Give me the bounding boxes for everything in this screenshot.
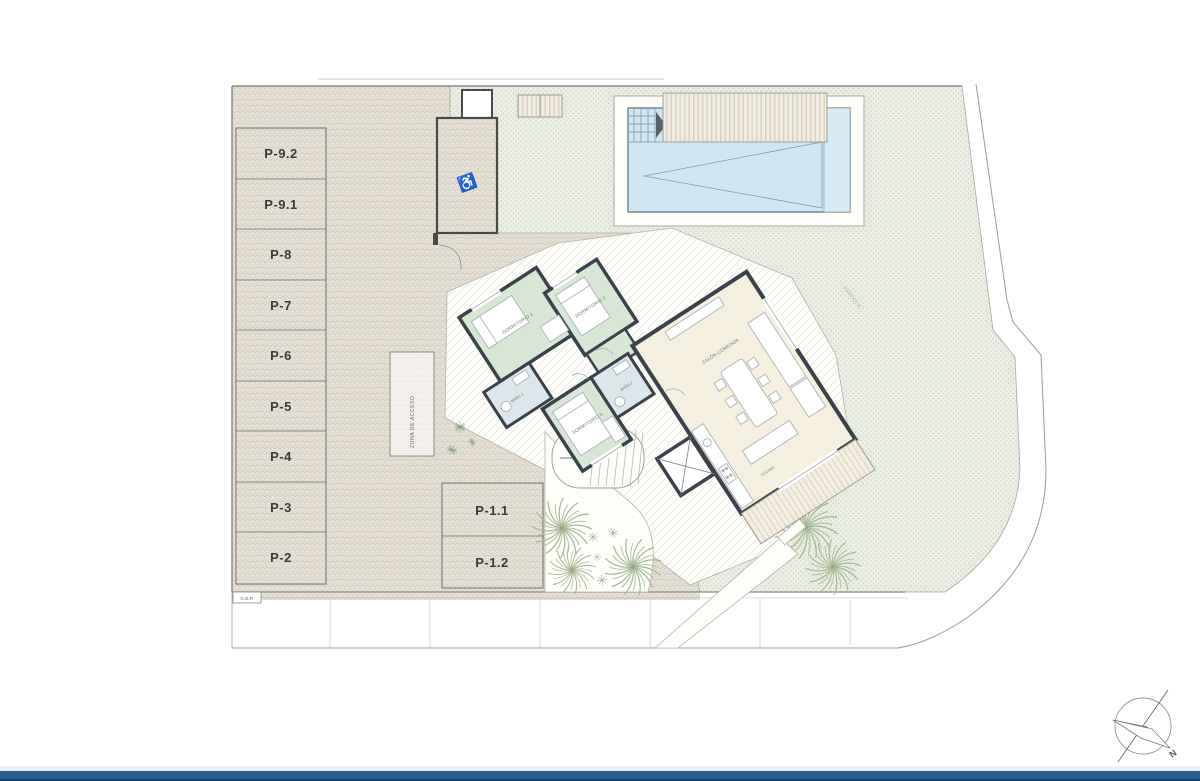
site-plan-drawing: ♿ P-9.2 P-9.1 P-8 P-7 P-6 P-5 P-4 P-3 P-… (0, 0, 1200, 781)
parking-stall-label: P-3 (270, 500, 292, 515)
footer-bar (0, 766, 1200, 781)
utility-box-label: C.G.P. (241, 596, 254, 601)
access-zone-label: ZONA DE ACCESO (410, 395, 416, 448)
site-plan-page: ♿ P-9.2 P-9.1 P-8 P-7 P-6 P-5 P-4 P-3 P-… (0, 0, 1200, 781)
parking-stall-label: P-4 (270, 449, 292, 464)
pool (614, 93, 864, 226)
parking-stall-label: P-8 (270, 247, 292, 262)
pool-pergola (663, 93, 827, 142)
parking-stall-label: P-9.2 (264, 146, 298, 161)
storage-structure (462, 90, 492, 118)
ac-units (518, 95, 562, 117)
pool-shallow-end (824, 108, 850, 212)
north-label: N (1167, 748, 1178, 760)
parking-stall-label: P-6 (270, 348, 292, 363)
parking-stall-label: P-2 (270, 550, 292, 565)
sidewalk-joints (330, 598, 850, 648)
utility-box: C.G.P. (233, 592, 261, 603)
compass-rose: N (1113, 690, 1178, 762)
parking-stall-label: P-1.2 (475, 555, 509, 570)
parking-stall-label: P-5 (270, 399, 292, 414)
parking-stall-label: P-1.1 (475, 503, 509, 518)
island-parking-stalls: P-1.1 P-1.2 (442, 483, 543, 588)
parking-stall-label: P-7 (270, 298, 292, 313)
access-zone-box: ZONA DE ACCESO (390, 352, 434, 456)
parking-stall-label: P-9.1 (264, 197, 298, 212)
accessible-parking-stall: ♿ (437, 118, 497, 233)
